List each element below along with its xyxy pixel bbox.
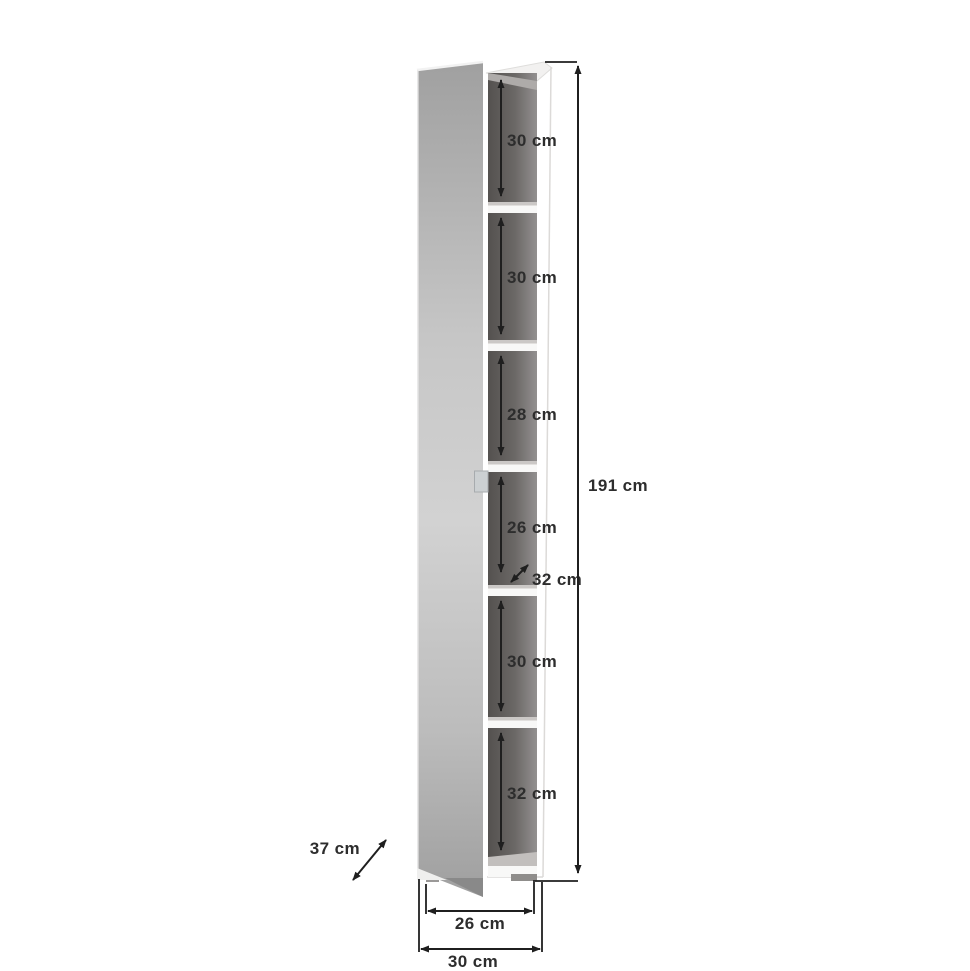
shelf xyxy=(488,717,537,728)
door-handle xyxy=(475,471,489,492)
cabinet xyxy=(417,62,552,897)
compartment-label: 30 cm xyxy=(507,268,557,287)
mirror-door-face xyxy=(417,62,483,897)
depth-label: 37 cm xyxy=(310,839,360,858)
feet-width-label: 26 cm xyxy=(455,914,505,933)
compartment-label: 26 cm xyxy=(507,518,557,537)
shelf xyxy=(488,202,537,213)
shelf xyxy=(488,585,537,596)
height-label: 191 cm xyxy=(588,476,648,495)
cabinet-right-edge xyxy=(543,67,551,877)
compartment-label: 30 cm xyxy=(507,131,557,150)
width-label: 30 cm xyxy=(448,952,498,971)
cabinet-dimension-diagram: 30 cm 30 cm 28 cm 26 cm 32 cm 30 cm xyxy=(0,0,970,971)
compartment-label: 32 cm xyxy=(507,784,557,803)
mirror-door xyxy=(417,62,488,897)
cabinet-foot-right xyxy=(511,874,537,881)
shelf xyxy=(488,461,537,472)
compartment-label: 30 cm xyxy=(507,652,557,671)
diagram-canvas: 30 cm 30 cm 28 cm 26 cm 32 cm 30 cm xyxy=(0,0,970,971)
depth-dimension: 37 cm xyxy=(310,839,386,880)
shelf-depth-label: 32 cm xyxy=(532,570,582,589)
shelf xyxy=(488,340,537,351)
compartment-label: 28 cm xyxy=(507,405,557,424)
